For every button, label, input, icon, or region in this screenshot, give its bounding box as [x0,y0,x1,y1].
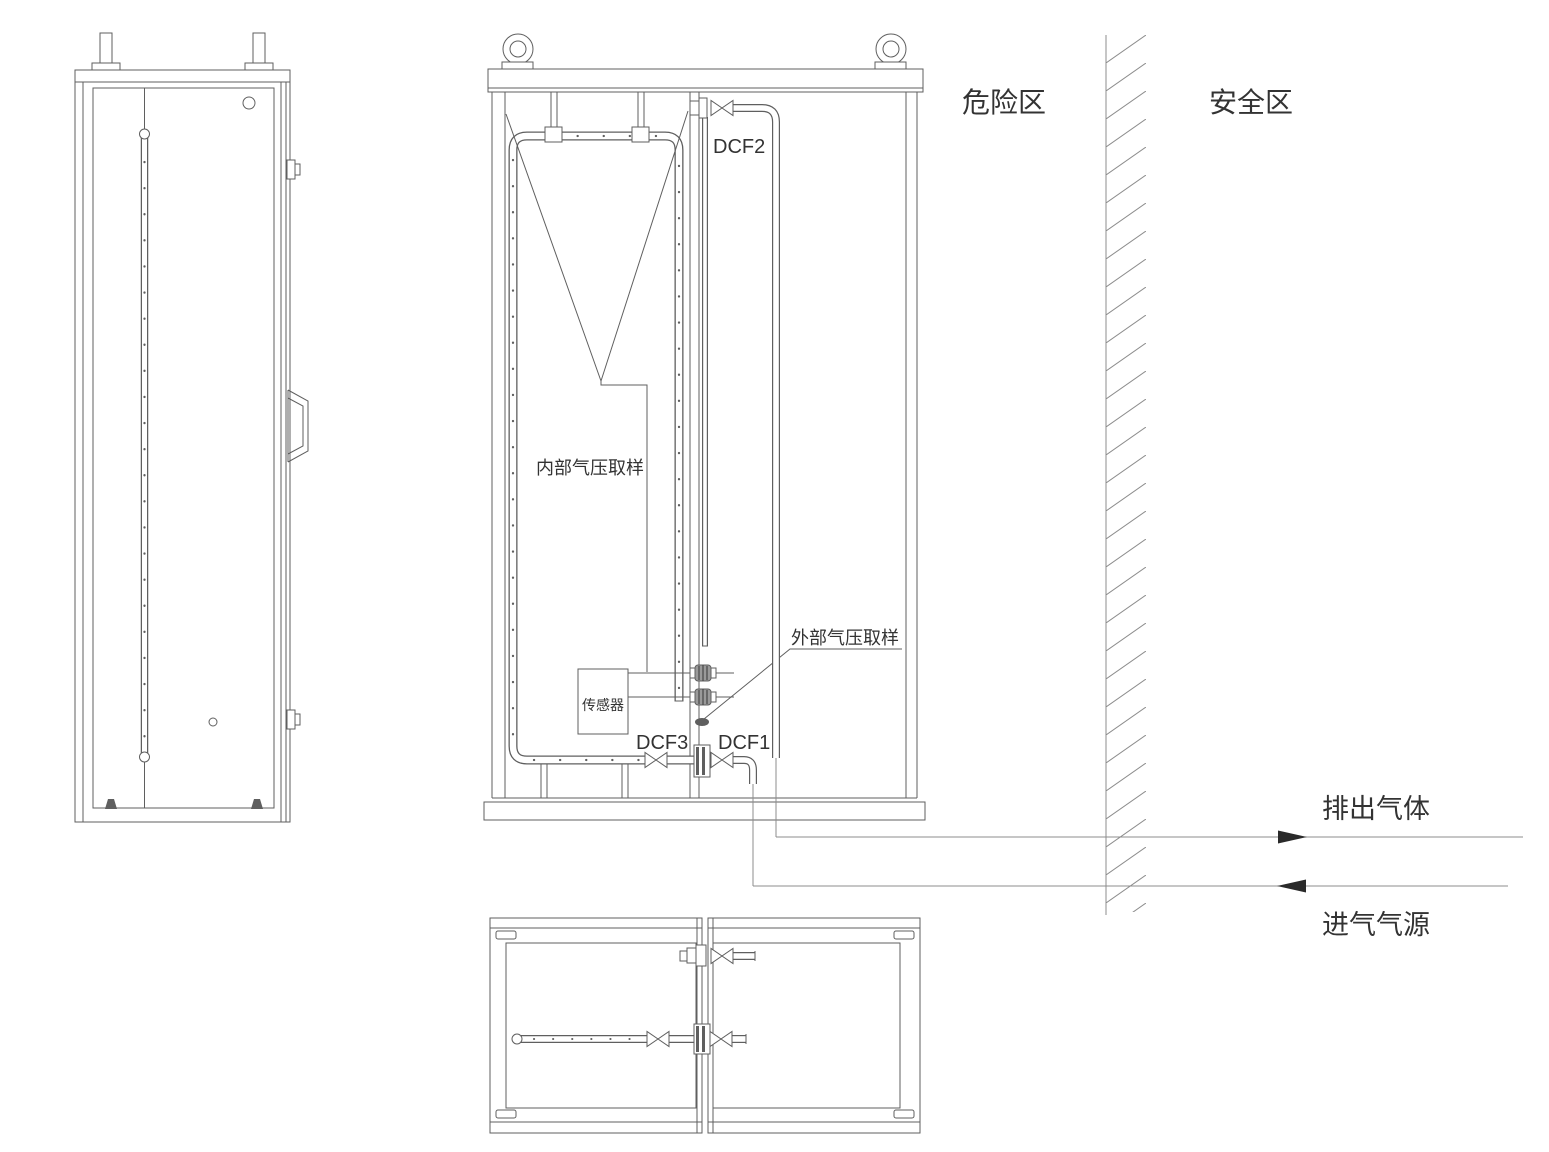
internal-sampling-label: 内部气压取样 [536,458,644,478]
cabinet-front-view: 内部气压取样 传感器 外部气压取样 DCF2 [484,34,925,820]
valve-icon [711,101,733,116]
cabinet-top-view [490,918,920,1133]
exhaust-line: 排出气体 [776,758,1523,844]
exhaust-arrow-icon [1278,831,1307,844]
side-view-sampling-tube [140,88,150,808]
tube-hanger-icon [632,92,649,142]
lifting-post-icon [100,33,112,63]
vent-hole-icon [243,97,255,109]
internal-sampling-leader [506,111,688,672]
valve-icon [710,1032,732,1047]
top-view-exhaust-assembly [680,945,755,966]
dcf2-label: DCF2 [713,136,765,158]
dcf3-label: DCF3 [636,732,688,754]
zone-wall [1106,35,1146,915]
vent-hole-icon [209,718,217,726]
tube-hanger-icon [545,92,562,142]
exhaust-gas-label: 排出气体 [1322,794,1430,824]
lifting-eye-icon [875,34,906,69]
internal-standpipe [702,117,708,646]
gland-fitting-icon [690,665,716,681]
cabinet-side-view [75,33,308,822]
intake-gas-label: 进气气源 [1322,910,1430,940]
gland-fitting-icon [690,689,716,705]
external-sampling-label: 外部气压取样 [791,628,899,648]
dcf3-dcf1-assembly: DCF3 DCF1 [636,732,770,784]
sensor-label: 传感器 [582,697,624,713]
external-sampling-point-icon [695,718,709,726]
dcf1-label: DCF1 [718,732,770,754]
valve-icon [647,1032,669,1047]
safe-zone-label: 安全区 [1209,87,1293,118]
mounting-slot-icon [894,1110,914,1118]
side-view-frame [75,33,290,822]
valve-icon [645,753,667,768]
hazard-zone-label: 危险区 [962,87,1046,118]
valve-icon [711,753,733,768]
valve-icon [711,949,733,964]
mounting-slot-icon [496,931,516,939]
mounting-slot-icon [894,931,914,939]
door-hinge-icon [287,710,300,729]
intake-arrow-icon [1277,880,1306,893]
door-hinge-icon [287,160,300,179]
purge-system-diagram: 内部气压取样 传感器 外部气压取样 DCF2 [0,0,1549,1152]
wall-hatching [1106,35,1146,912]
external-sampling-leader [704,649,902,719]
lifting-eye-icon [502,34,533,69]
top-view-inlet-assembly [512,1024,746,1054]
mounting-slot-icon [496,1110,516,1118]
lifting-post-icon [253,33,265,63]
door-handle-icon [288,390,308,462]
